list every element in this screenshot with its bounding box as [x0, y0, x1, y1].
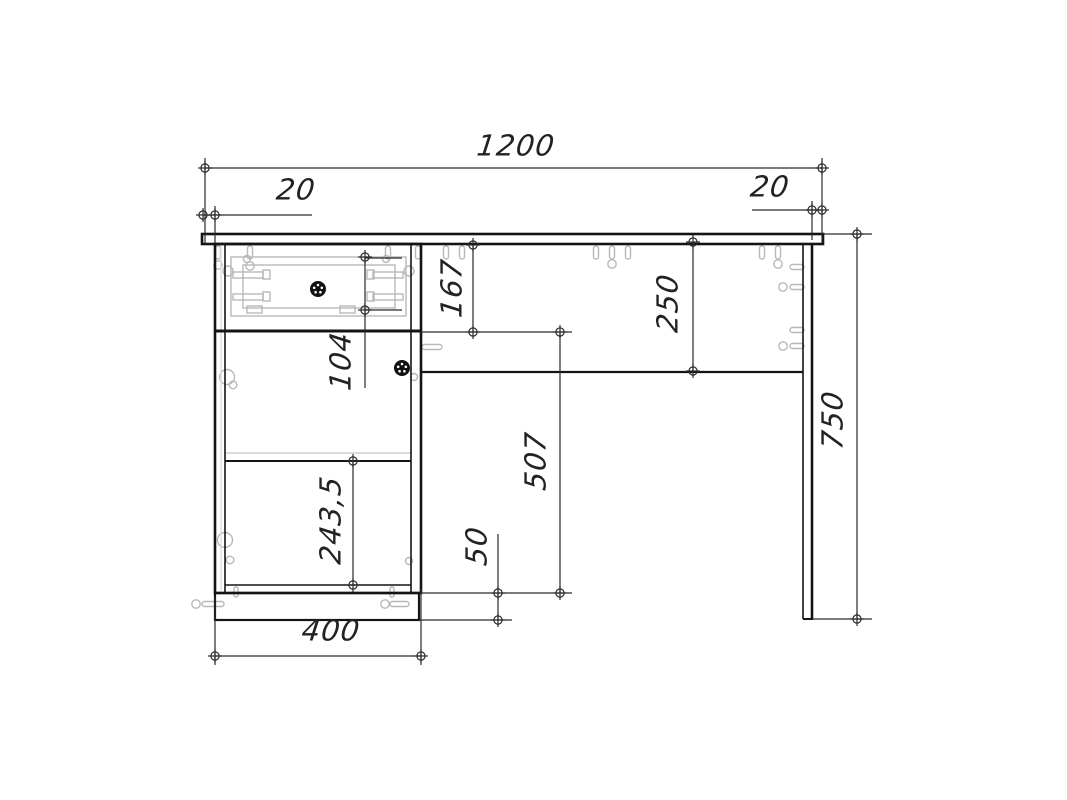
dim-label-total-width: 1200 [475, 132, 556, 161]
drawer-knob-icon [310, 281, 326, 297]
dim-label-left-overhang: 20 [275, 176, 317, 205]
desktop-panel [202, 234, 823, 244]
drawing-linework [0, 0, 1067, 800]
dim-label-knee-clearance-height: 507 [522, 430, 551, 492]
dim-label-drawer-opening-height: 104 [327, 330, 356, 392]
dim-label-pedestal-width: 400 [300, 617, 362, 646]
dim-label-drawer-section-height: 167 [438, 257, 467, 319]
dim-label-plinth-height: 50 [463, 525, 492, 567]
door-knob-icon [394, 360, 410, 376]
technical-drawing-canvas: 1200 20 20 750 167 250 104 507 50 243,5 … [0, 0, 1067, 800]
dim-label-right-overhang: 20 [749, 173, 791, 202]
dim-label-door-panel-height: 243,5 [317, 474, 346, 566]
dimension-tick-markers [196, 161, 864, 663]
dim-label-top-clearance-height: 250 [654, 272, 683, 334]
desk-structure [202, 234, 823, 620]
dim-label-total-height: 750 [819, 389, 848, 451]
